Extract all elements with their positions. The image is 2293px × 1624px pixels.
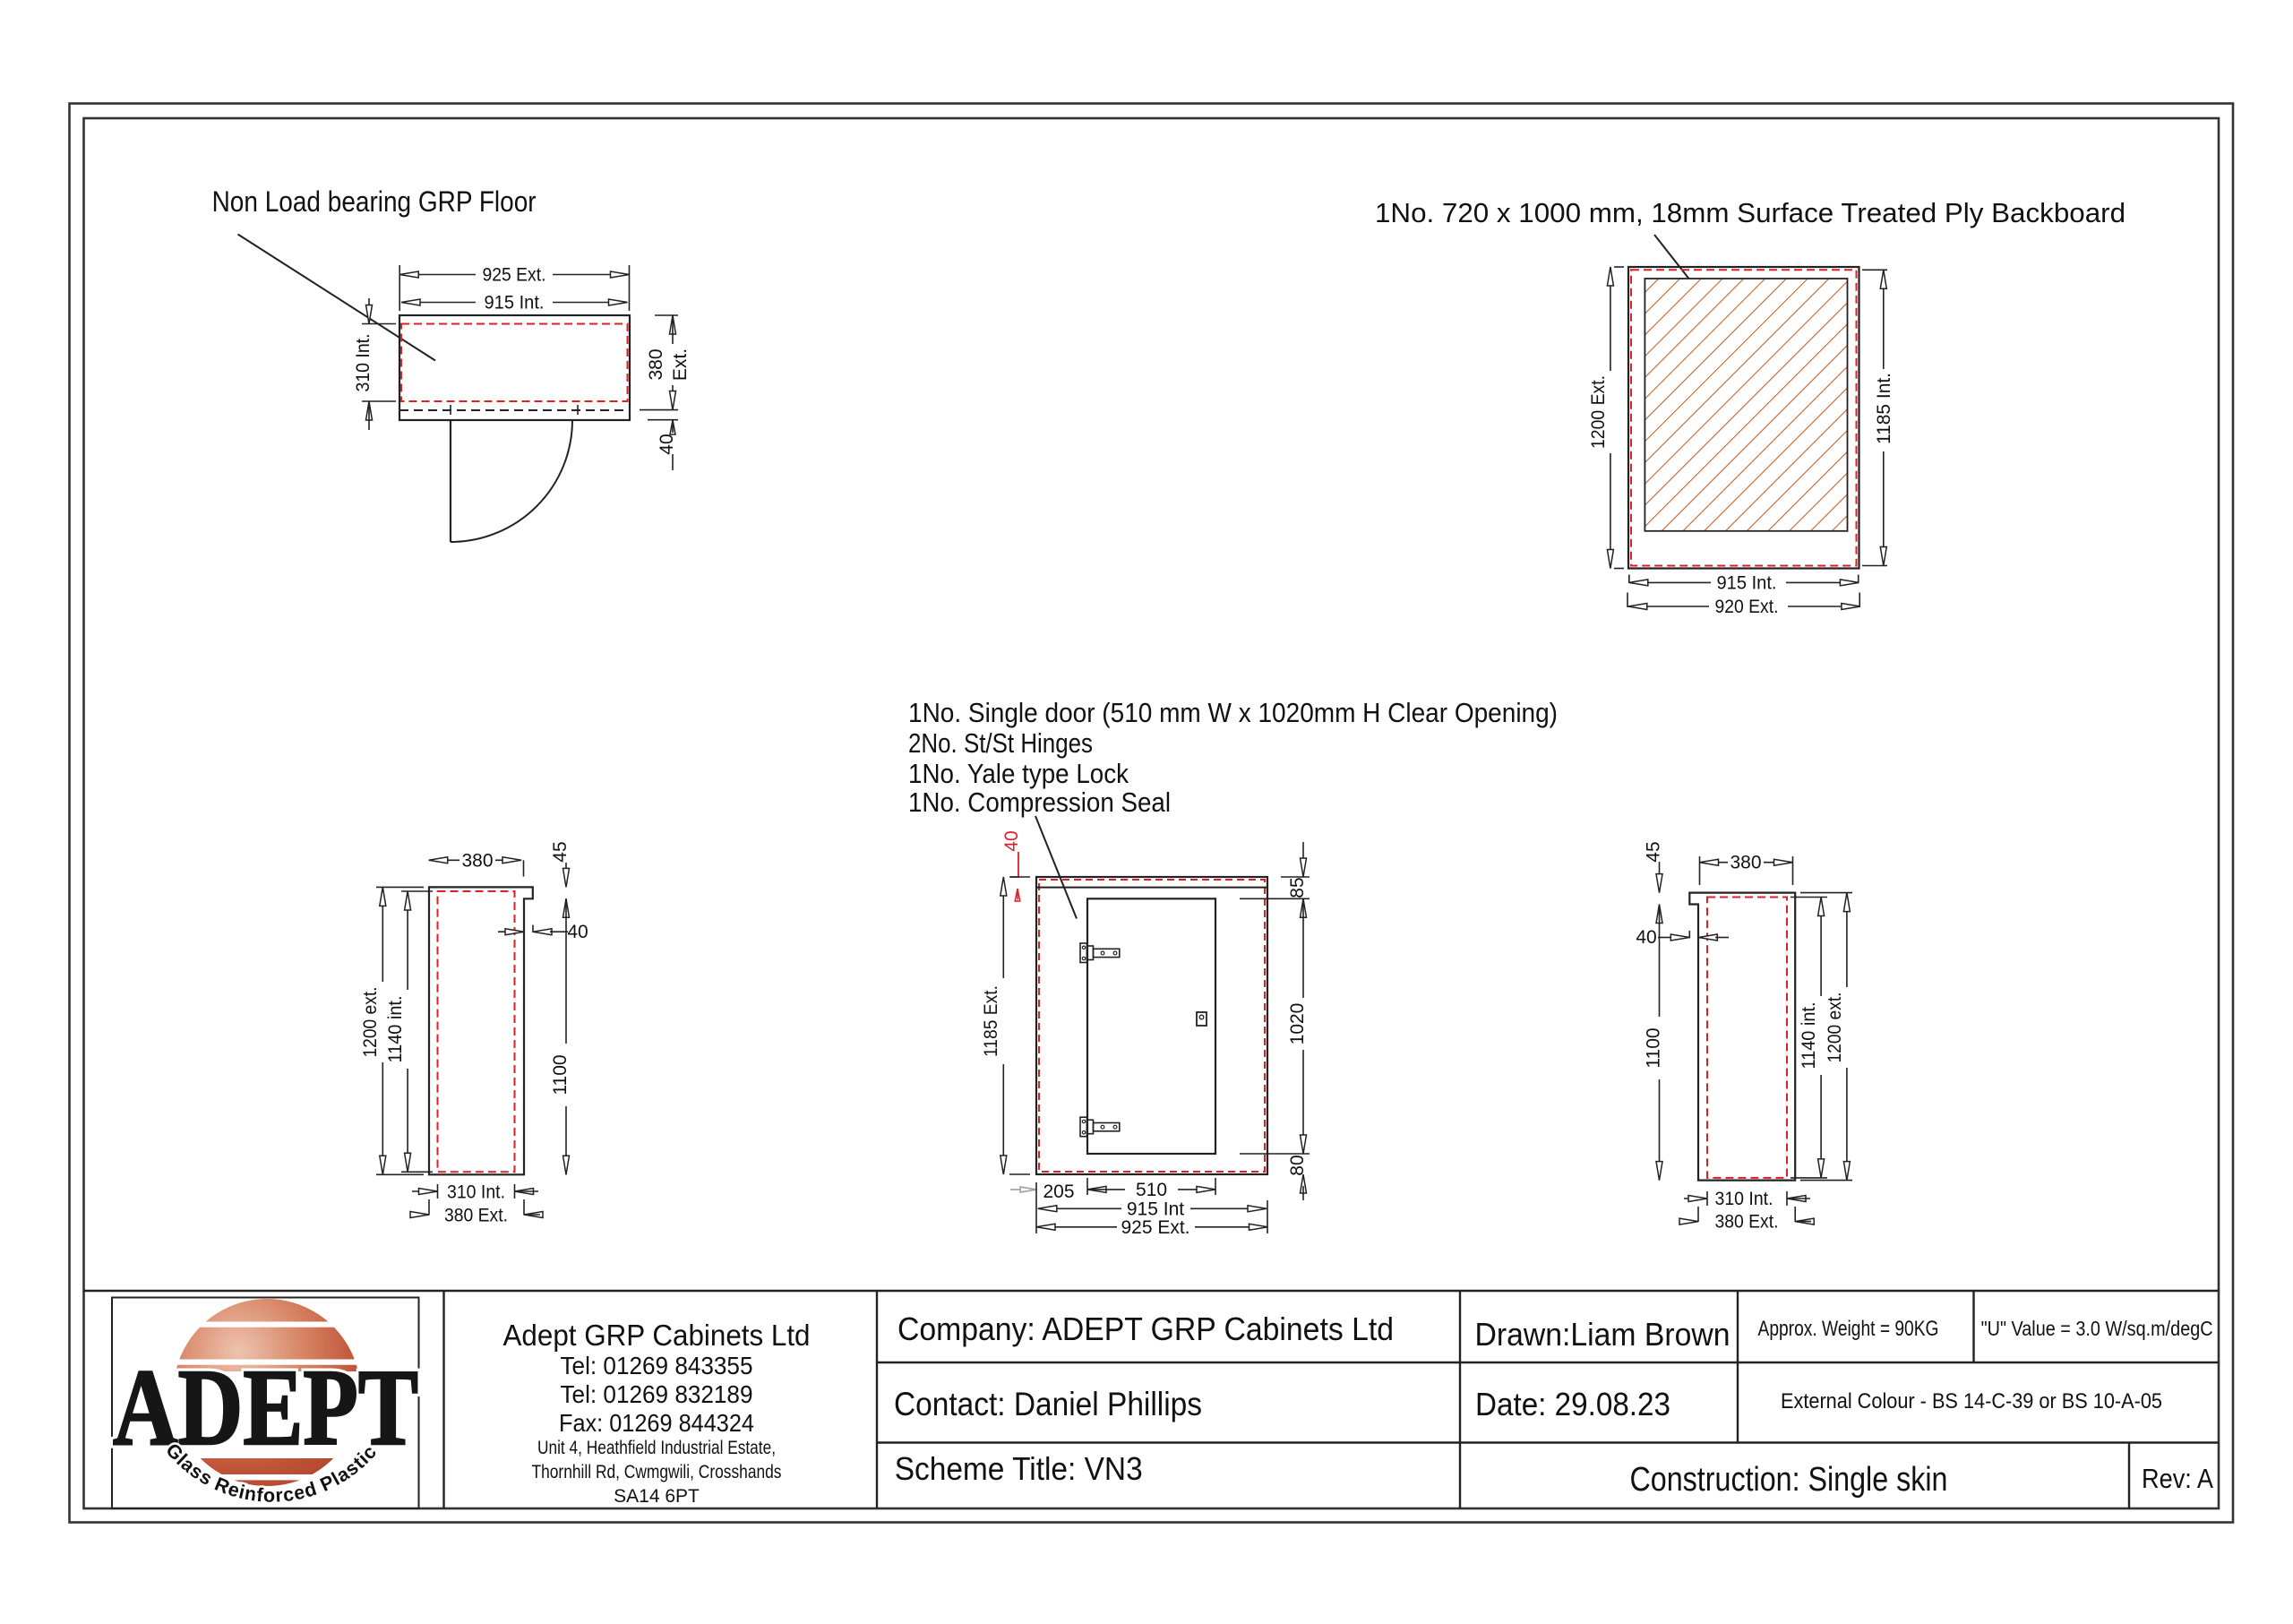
svg-text:380 Ext.: 380 Ext. [1715, 1212, 1779, 1233]
svg-text:SA14 6PT: SA14 6PT [614, 1486, 700, 1507]
svg-text:Unit 4, Heathfield Industrial: Unit 4, Heathfield Industrial Estate, [537, 1438, 776, 1458]
svg-text:Adept GRP Cabinets Ltd: Adept GRP Cabinets Ltd [503, 1319, 811, 1352]
svg-text:85: 85 [1287, 877, 1308, 898]
svg-text:1100: 1100 [1644, 1027, 1664, 1068]
svg-text:Contact: Daniel Phillips: Contact: Daniel Phillips [894, 1386, 1202, 1422]
svg-text:40: 40 [1001, 830, 1022, 851]
svg-text:1No. 720 x 1000 mm, 18mm Surfa: 1No. 720 x 1000 mm, 18mm Surface Treated… [1375, 197, 2126, 228]
svg-text:Tel: 01269 832189: Tel: 01269 832189 [561, 1380, 753, 1408]
svg-text:310 Int.: 310 Int. [447, 1182, 505, 1203]
svg-text:Tel: 01269 843355: Tel: 01269 843355 [561, 1352, 753, 1379]
svg-text:Company: ADEPT GRP Cabinets Lt: Company: ADEPT GRP Cabinets Ltd [897, 1310, 1394, 1347]
svg-text:40: 40 [567, 922, 588, 942]
svg-text:380: 380 [646, 348, 666, 380]
svg-text:915 Int.: 915 Int. [485, 293, 545, 314]
svg-text:40: 40 [657, 434, 677, 454]
svg-text:80: 80 [1287, 1155, 1308, 1175]
svg-text:1185 Ext.: 1185 Ext. [981, 985, 1001, 1057]
svg-text:510: 510 [1136, 1180, 1167, 1200]
svg-text:380: 380 [1730, 853, 1761, 873]
svg-text:925 Ext.: 925 Ext. [483, 265, 546, 286]
svg-text:Approx. Weight = 90KG: Approx. Weight = 90KG [1758, 1317, 1939, 1341]
svg-text:1200 Ext.: 1200 Ext. [1588, 375, 1609, 449]
svg-text:External Colour - BS 14-C-39 o: External Colour - BS 14-C-39 or BS 10-A-… [1781, 1389, 2162, 1413]
svg-text:Ext.: Ext. [670, 348, 691, 381]
svg-text:Non Load bearing GRP Floor: Non Load bearing GRP Floor [212, 185, 537, 218]
svg-text:Rev: A: Rev: A [2142, 1463, 2213, 1494]
svg-text:1No. Yale type Lock: 1No. Yale type Lock [908, 759, 1129, 789]
svg-text:380: 380 [461, 850, 493, 871]
svg-text:1140 int.: 1140 int. [1799, 1002, 1819, 1070]
svg-text:1100: 1100 [550, 1054, 571, 1095]
svg-text:40: 40 [1636, 927, 1656, 948]
svg-text:1No. Single door (510 mm W x 1: 1No. Single door (510 mm W x 1020mm H Cl… [908, 698, 1558, 728]
svg-text:Fax: 01269 844324: Fax: 01269 844324 [559, 1409, 754, 1437]
svg-text:45: 45 [1644, 841, 1664, 862]
svg-text:925 Ext.: 925 Ext. [1121, 1217, 1189, 1238]
svg-text:Thornhill Rd, Cwmgwili, Crossh: Thornhill Rd, Cwmgwili, Crosshands [532, 1462, 782, 1482]
svg-text:45: 45 [550, 841, 571, 862]
svg-text:920 Ext.: 920 Ext. [1715, 597, 1779, 617]
svg-text:915 Int.: 915 Int. [1717, 572, 1777, 593]
svg-text:Construction: Single skin: Construction: Single skin [1630, 1461, 1948, 1499]
svg-text:1200 ext.: 1200 ext. [360, 987, 381, 1058]
svg-text:2No. St/St Hinges: 2No. St/St Hinges [908, 728, 1093, 759]
svg-text:Scheme Title: VN3: Scheme Title: VN3 [895, 1450, 1143, 1487]
svg-text:1185 Int.: 1185 Int. [1874, 373, 1894, 444]
svg-text:"U" Value = 3.0 W/sq.m/degC: "U" Value = 3.0 W/sq.m/degC [1981, 1317, 2213, 1340]
svg-text:Drawn:Liam Brown: Drawn:Liam Brown [1475, 1316, 1730, 1353]
svg-text:1200 ext.: 1200 ext. [1825, 992, 1845, 1063]
svg-text:1140 int.: 1140 int. [385, 996, 406, 1063]
svg-text:1020: 1020 [1287, 1003, 1308, 1045]
svg-text:380 Ext.: 380 Ext. [444, 1206, 508, 1226]
svg-text:205: 205 [1043, 1181, 1074, 1202]
svg-text:310 Int.: 310 Int. [1715, 1189, 1773, 1209]
svg-text:310 Int.: 310 Int. [353, 334, 374, 392]
svg-text:Date: 29.08.23: Date: 29.08.23 [1475, 1386, 1670, 1422]
svg-text:1No. Compression Seal: 1No. Compression Seal [908, 787, 1171, 818]
